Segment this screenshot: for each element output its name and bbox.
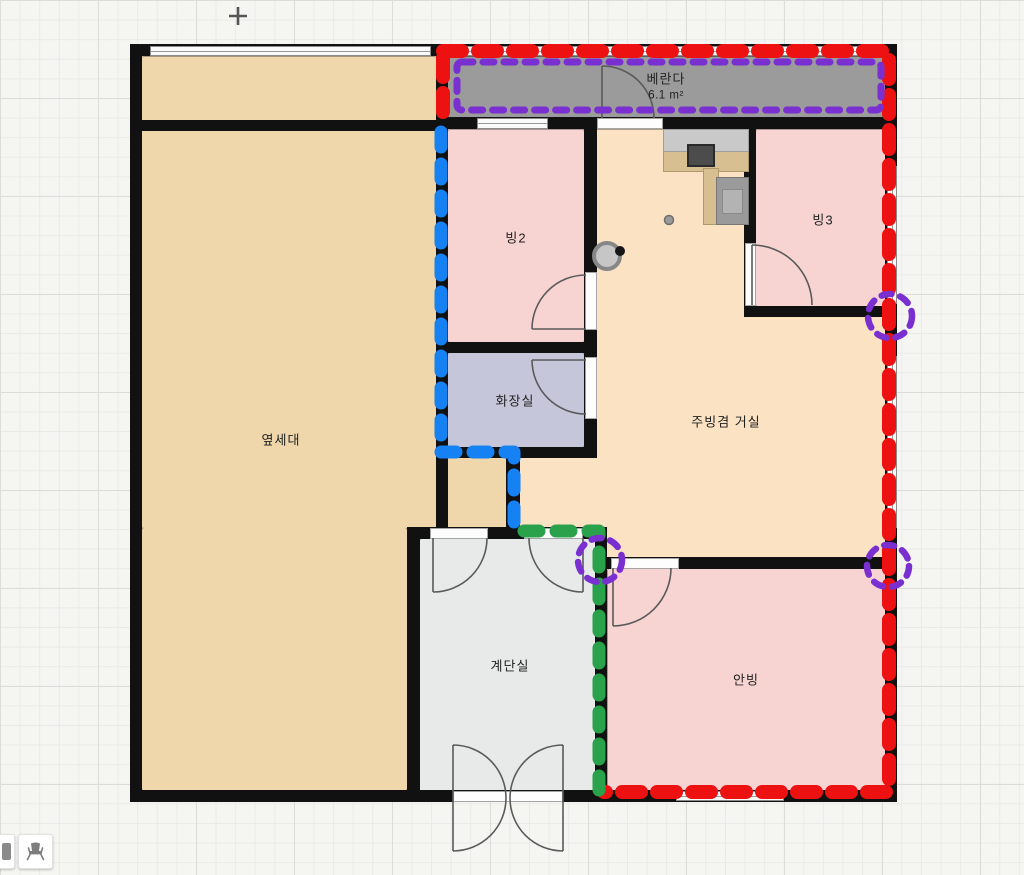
red-dashed-path — [443, 51, 889, 792]
blue-dashed-path — [441, 132, 514, 530]
wall-tool-button[interactable] — [0, 834, 15, 869]
purple-dashed-rect — [457, 62, 881, 110]
green-dashed-path — [524, 531, 599, 790]
wall-segment-icon — [2, 843, 11, 860]
floorplan-canvas[interactable]: 베란다 6.1 m² 빙2 빙3 옆세대 화장실 주빙겸 거실 계단실 안빙 — [0, 0, 1024, 875]
chair-icon — [25, 841, 46, 862]
furniture-tool-button[interactable] — [18, 834, 53, 869]
annotation-overlay — [0, 0, 1024, 875]
